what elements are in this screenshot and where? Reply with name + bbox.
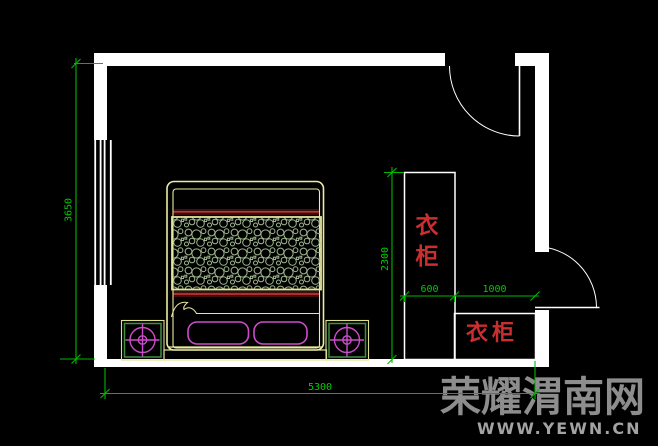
bed-platform: [164, 350, 327, 360]
door-top: [450, 66, 520, 136]
wall-right-lower: [535, 310, 549, 367]
blanket-fold-curl: [172, 302, 197, 317]
window: [95, 140, 111, 285]
dim-text-wardrobe-depth: 600: [420, 284, 438, 295]
wall-top-left: [94, 53, 445, 66]
foot-cushion-left: [188, 322, 249, 344]
door-top-swing-arc: [450, 66, 520, 136]
walls: [94, 53, 549, 367]
dim-text-closet-width: 1000: [482, 284, 506, 295]
wardrobe-low-label: 衣柜: [466, 322, 518, 346]
nightstand-left: [122, 321, 165, 361]
lamp-symbol-right: [330, 324, 364, 357]
cad-canvas: 荣耀渭南网 WWW.YEWN.CN: [0, 0, 658, 446]
nightstand-right: [326, 321, 369, 361]
bed-quilt-pattern: [172, 217, 321, 290]
foot-cushion-right: [254, 322, 307, 344]
dim-text-wardrobe-height: 2300: [380, 247, 391, 271]
dim-text-room-height: 3650: [64, 198, 75, 222]
bed: [164, 182, 327, 361]
door-right-swing-arc: [536, 247, 597, 308]
lamp-symbol-left: [126, 324, 160, 357]
wall-left-lower: [94, 285, 107, 367]
door-right: [535, 247, 600, 308]
wall-right-upper: [535, 53, 549, 252]
dim-text-room-width: 5300: [308, 382, 332, 393]
floorplan-drawing: 3650 5300 2300 600 1000: [0, 0, 658, 446]
wall-left-upper: [94, 53, 107, 140]
wardrobe-tall-label: 衣柜: [412, 211, 442, 273]
